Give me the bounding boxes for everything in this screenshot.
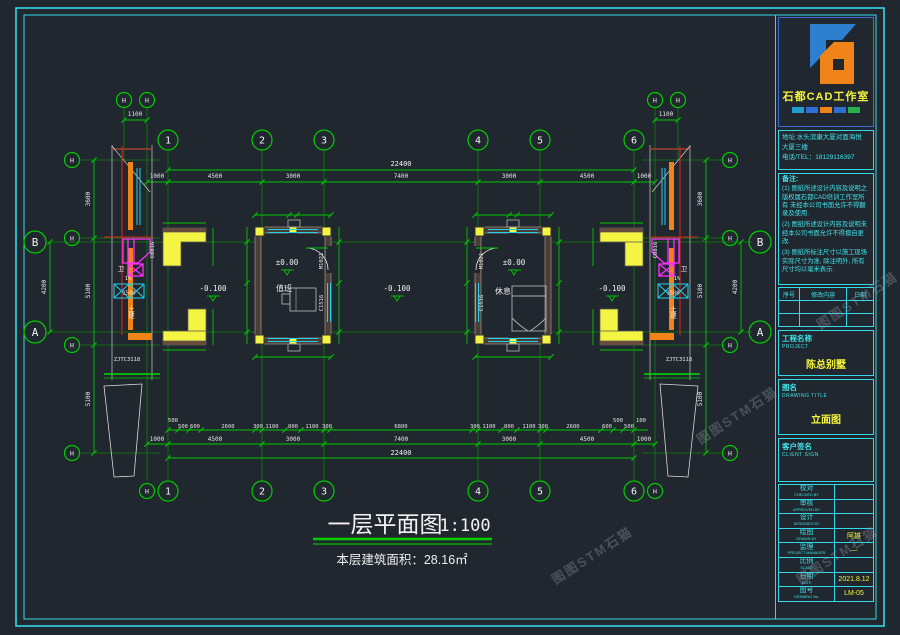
- svg-text:-0.100: -0.100: [199, 284, 227, 293]
- svg-text:4200: 4200: [41, 279, 48, 294]
- plan-scale: 1:100: [439, 516, 490, 536]
- svg-text:±0.00: ±0.00: [276, 258, 299, 267]
- staff-label-en: APPROVED BY: [782, 508, 832, 512]
- window-code-right: C1516: [479, 295, 485, 312]
- rev-header-no: 序号: [779, 288, 800, 301]
- door-code-left: M1021: [319, 253, 325, 270]
- svg-text:-0.100: -0.100: [598, 284, 626, 293]
- door-code-right: M1021: [479, 253, 485, 270]
- svg-text:4500: 4500: [208, 173, 223, 180]
- drawing-title-group: 一层平面图 1:100 本层建筑面积：28.16㎡: [313, 512, 492, 567]
- staff-label-en: DRAWING No.: [782, 595, 832, 599]
- staff-label-en: DRAWN BY: [782, 537, 832, 541]
- room-label-left: 值班: [276, 283, 292, 293]
- plan-area-note: 本层建筑面积：28.16㎡: [336, 552, 468, 567]
- sub-axis-bubble: H: [70, 450, 74, 458]
- rev-empty-row: [779, 314, 874, 327]
- svg-text:3000: 3000: [286, 436, 301, 443]
- room-label-right: 休息: [495, 286, 511, 296]
- note-1: (1) 图纸所述设计内容及说明之版权属石都CAD培训工作室所有 未经本公司书面允…: [782, 185, 870, 218]
- axis-bubble-2b: 2: [259, 487, 265, 498]
- axis-bubble-6b: 6: [631, 487, 637, 498]
- axis-bubble-3b: 3: [321, 487, 327, 498]
- svg-text:5100: 5100: [697, 283, 704, 298]
- svg-text:7400: 7400: [394, 436, 409, 443]
- axis-bubble-5: 5: [537, 136, 543, 147]
- site-wall-right: [660, 384, 698, 477]
- staff-value: LM-05: [835, 587, 874, 602]
- staff-value: —: [835, 543, 874, 558]
- svg-text:2600: 2600: [221, 424, 234, 430]
- sub-axis-bubble: H: [676, 97, 680, 105]
- sub-axis-bubble: H: [145, 488, 149, 496]
- dim-row-top: 1000 4500 3000 7400 3000 4500 1000: [150, 173, 652, 180]
- axis-bubble-A-right: A: [757, 326, 764, 339]
- svg-text:300: 300: [322, 424, 332, 430]
- svg-text:4200: 4200: [732, 279, 739, 294]
- svg-text:4500: 4500: [580, 436, 595, 443]
- staff-value: [835, 557, 874, 572]
- staff-value: 阿雄: [835, 528, 874, 543]
- svg-text:1100: 1100: [522, 424, 535, 430]
- svg-text:1000: 1000: [150, 173, 165, 180]
- project-label: 工程名称: [782, 333, 870, 344]
- staff-table: 校对CHECKED BY 审核APPROVED BY 设计DESIGNED BY…: [778, 484, 874, 602]
- drawing-title-label: 图名: [782, 382, 870, 393]
- staff-value: [835, 485, 874, 500]
- edge-window-code-left: C0816: [150, 242, 156, 259]
- rev-header-content: 修改内容: [799, 288, 847, 301]
- staff-value: [835, 514, 874, 529]
- svg-text:3600: 3600: [85, 191, 92, 206]
- sub-axis-bubble: H: [70, 157, 74, 165]
- axis-bubbles-top: [117, 93, 686, 151]
- cad-sheet: 1 2 3 4 5 6 H H H H 1 2 3 4 5 6 H H B A …: [0, 0, 900, 635]
- rev-header-date: 日期: [847, 288, 874, 301]
- axis-bubble-5b: 5: [537, 487, 543, 498]
- staff-label-en: DATE: [782, 581, 832, 585]
- staff-row-date: 日期DATE 2021.8.12: [779, 572, 874, 587]
- svg-text:3600: 3600: [697, 191, 704, 206]
- dim-row-bottom-main: 1000 4500 3000 7400 3000 4500 1000: [150, 436, 652, 443]
- sub-axis-bubble: H: [728, 450, 732, 458]
- staff-row-checked: 校对CHECKED BY: [779, 485, 874, 500]
- dim-overall-top: 22400: [390, 160, 411, 168]
- svg-text:300: 300: [470, 424, 480, 430]
- drawing-title-value: 立面图: [782, 411, 870, 426]
- axis-bubble-1b: 1: [165, 487, 171, 498]
- svg-text:7400: 7400: [394, 173, 409, 180]
- svg-text:500: 500: [168, 418, 178, 424]
- dim-corner-left: 1100: [128, 111, 143, 118]
- site-wall-left: [104, 384, 142, 477]
- unit-right: [472, 220, 551, 351]
- axis-bubbles-sides: [24, 153, 771, 461]
- note-2: (2) 图纸所述设计内容及说明未经本公司书面允许不得擅自更改.: [782, 221, 870, 246]
- floor-plan-canvas: 1 2 3 4 5 6 H H H H 1 2 3 4 5 6 H H B A …: [0, 0, 900, 635]
- svg-text:±0.00: ±0.00: [503, 258, 526, 267]
- soil-label-right: 土建: [669, 304, 677, 320]
- studio-address-box: 地址:水头滨康大厦对面海悦 大厦三楼 电话/TEL：18129116397: [778, 130, 874, 170]
- svg-text:500: 500: [613, 418, 623, 424]
- staff-label-en: CHECKED BY: [782, 493, 832, 497]
- svg-text:6800: 6800: [394, 424, 407, 430]
- axis-bubble-B-right: B: [757, 236, 764, 249]
- client-sign-label: 客户签名: [782, 441, 870, 452]
- dim-corner-right: 1100: [659, 111, 674, 118]
- svg-text:5100: 5100: [85, 283, 92, 298]
- svg-text:1100: 1100: [482, 424, 495, 430]
- drawing-title-box: 图名 DRAWING TITLE 立面图: [778, 379, 874, 435]
- svg-text:3000: 3000: [502, 436, 517, 443]
- staff-label-en: DESIGNED BY: [782, 522, 832, 526]
- staff-value: [835, 499, 874, 514]
- axis-bubble-3: 3: [321, 136, 327, 147]
- window-code-left: C1516: [319, 295, 325, 312]
- sub-axis-bubble: H: [728, 235, 732, 243]
- dim-col-right: 3600 5100 5100 4200: [697, 191, 739, 406]
- client-sign-box: 客户签名 CLIENT SIGN: [778, 438, 874, 482]
- stair-left: [123, 239, 150, 276]
- fence-dim-left: 1500: [122, 291, 135, 297]
- svg-text:300: 300: [538, 424, 548, 430]
- toilet-label-left: 卫: [118, 265, 125, 273]
- svg-text:500: 500: [624, 424, 634, 430]
- svg-text:1000: 1000: [150, 436, 165, 443]
- svg-text:2600: 2600: [566, 424, 579, 430]
- studio-logo-icon: [794, 22, 858, 86]
- svg-text:600: 600: [602, 424, 612, 430]
- axis-bubbles-bottom: [140, 481, 663, 501]
- staff-row-supervisor: 监理PROJECT MANAGER —: [779, 543, 874, 558]
- logo-tagline-blocks: [792, 107, 860, 113]
- svg-text:800: 800: [288, 424, 298, 430]
- staff-row-scale: 比例SCALE: [779, 557, 874, 572]
- svg-text:4500: 4500: [208, 436, 223, 443]
- svg-text:800: 800: [504, 424, 514, 430]
- axis-bubble-2: 2: [259, 136, 265, 147]
- axis-bubble-A: A: [32, 326, 39, 339]
- staff-label-en: PROJECT MANAGER: [782, 552, 832, 556]
- sub-axis-bubble: H: [728, 157, 732, 165]
- svg-text:4500: 4500: [580, 173, 595, 180]
- note-3: (3) 图纸所标注尺寸以施工现场实际尺寸为准, 除注明外, 所有尺寸均以毫米表示…: [782, 249, 870, 274]
- svg-text:1100: 1100: [305, 424, 318, 430]
- dim-overall-bottom: 22400: [390, 449, 411, 457]
- toilet-label-right: 卫: [681, 265, 688, 273]
- staff-label-en: SCALE: [782, 566, 832, 570]
- axis-bubble-B: B: [32, 236, 39, 249]
- axis-bubble-1: 1: [165, 136, 171, 147]
- soil-label-left: 土建: [127, 304, 135, 320]
- project-label-en: PROJECT: [782, 344, 870, 350]
- axis-bubble-6: 6: [631, 136, 637, 147]
- unit-left: [255, 220, 334, 351]
- notes-box: 备注: (1) 图纸所述设计内容及说明之版权属石都CAD培训工作室所有 未经本公…: [778, 173, 874, 285]
- sub-axis-bubble: H: [145, 97, 149, 105]
- svg-text:1000: 1000: [637, 173, 652, 180]
- staff-row-designed: 设计DESIGNED BY: [779, 514, 874, 529]
- frame-code-left: ZJTC3118: [114, 357, 141, 363]
- svg-text:5100: 5100: [85, 391, 92, 406]
- fence-dim-right: 1500: [666, 291, 679, 297]
- sub-axis-bubble: H: [653, 488, 657, 496]
- notes-title: 备注:: [782, 175, 870, 184]
- svg-text:500: 500: [178, 424, 188, 430]
- sub-axis-bubble: H: [70, 235, 74, 243]
- revision-table: 序号 修改内容 日期: [778, 287, 874, 327]
- drawing-title-label-en: DRAWING TITLE: [782, 393, 870, 399]
- staff-value: 2021.8.12: [835, 572, 874, 587]
- slope-label-right: 1%: [674, 276, 681, 282]
- edge-window-code-right: C0816: [653, 242, 659, 259]
- address-line1: 地址:水头滨康大厦对面海悦: [782, 133, 870, 143]
- rev-empty-row: [779, 301, 874, 314]
- svg-text:600: 600: [190, 424, 200, 430]
- svg-text:300: 300: [253, 424, 263, 430]
- axis-bubble-4b: 4: [475, 487, 481, 498]
- studio-name: 石都CAD工作室: [783, 88, 870, 104]
- slope-label-left: 1%: [125, 276, 132, 282]
- axis-bubble-4: 4: [475, 136, 481, 147]
- svg-text:5100: 5100: [697, 391, 704, 406]
- project-box: 工程名称 PROJECT 陈总别墅: [778, 330, 874, 376]
- sub-axis-bubble: H: [728, 342, 732, 350]
- svg-text:100: 100: [636, 418, 646, 424]
- dim-row-bottom-detail: 500 500 600 2600 300 1100 800 1100 300 6…: [168, 418, 646, 430]
- sub-axis-bubble: H: [653, 97, 657, 105]
- svg-text:3000: 3000: [286, 173, 301, 180]
- frame-code-right: ZJTC3118: [666, 357, 693, 363]
- studio-logo-box: 石都CAD工作室: [778, 17, 874, 127]
- staff-row-drawn: 绘图DRAWN BY 阿雄: [779, 528, 874, 543]
- staff-row-number: 图号DRAWING No. LM-05: [779, 587, 874, 602]
- svg-text:3000: 3000: [502, 173, 517, 180]
- client-sign-label-en: CLIENT SIGN: [782, 452, 870, 458]
- svg-text:1000: 1000: [637, 436, 652, 443]
- address-line2: 大厦三楼: [782, 143, 870, 153]
- svg-text:-0.100: -0.100: [383, 284, 411, 293]
- dim-col-left: 3600 5100 5100 4200: [41, 191, 92, 406]
- svg-text:1100: 1100: [265, 424, 278, 430]
- staff-row-approved: 审核APPROVED BY: [779, 499, 874, 514]
- title-block: 石都CAD工作室 地址:水头滨康大厦对面海悦 大厦三楼 电话/TEL：18129…: [775, 15, 876, 619]
- address-phone: 电话/TEL：18129116397: [782, 153, 870, 163]
- sub-axis-bubble: H: [122, 97, 126, 105]
- sub-axis-bubble: H: [70, 342, 74, 350]
- plan-title: 一层平面图: [328, 512, 443, 538]
- project-value: 陈总别墅: [782, 356, 870, 371]
